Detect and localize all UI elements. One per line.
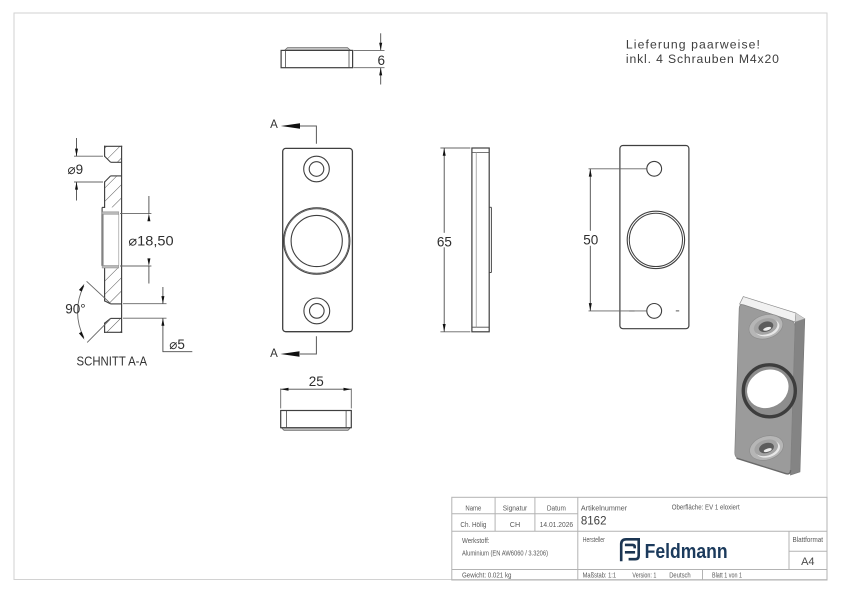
svg-text:14.01.2026: 14.01.2026	[540, 520, 574, 529]
svg-text:Version: 1: Version: 1	[632, 571, 656, 580]
svg-text:A4: A4	[801, 556, 814, 568]
svg-text:Artikelnummer: Artikelnummer	[581, 504, 628, 513]
svg-text:⌀9: ⌀9	[68, 162, 84, 177]
svg-text:A: A	[270, 348, 278, 360]
svg-text:Signatur: Signatur	[503, 504, 528, 513]
svg-text:50: 50	[583, 232, 598, 247]
svg-text:Blatt 1 von 1: Blatt 1 von 1	[712, 571, 742, 580]
svg-text:Ch. Hölig: Ch. Hölig	[460, 520, 486, 529]
svg-text:65: 65	[437, 234, 452, 249]
svg-text:Deutsch: Deutsch	[669, 571, 691, 580]
svg-text:⌀18,50: ⌀18,50	[128, 234, 173, 249]
svg-text:Gewicht: 0.021 kg: Gewicht: 0.021 kg	[462, 571, 512, 580]
svg-text:Aluminium (EN AW6060 / 3.3206): Aluminium (EN AW6060 / 3.3206)	[462, 549, 548, 558]
svg-text:Lieferung paarweise!: Lieferung paarweise!	[626, 37, 760, 51]
svg-text:Name: Name	[465, 504, 481, 513]
svg-text:25: 25	[309, 374, 324, 389]
svg-text:Blattformat: Blattformat	[793, 535, 824, 544]
svg-text:⌀5: ⌀5	[169, 337, 185, 352]
svg-text:inkl. 4 Schrauben M4x20: inkl. 4 Schrauben M4x20	[626, 52, 779, 66]
svg-text:90°: 90°	[65, 301, 85, 316]
svg-text:Oberfläche: EV 1 eloxiert: Oberfläche: EV 1 eloxiert	[672, 503, 740, 512]
svg-text:Werkstoff:: Werkstoff:	[462, 536, 490, 545]
svg-text:6: 6	[377, 53, 385, 68]
svg-text:Hersteller: Hersteller	[583, 535, 605, 544]
svg-text:Feldmann: Feldmann	[645, 540, 728, 563]
svg-text:SCHNITT A-A: SCHNITT A-A	[77, 355, 148, 369]
svg-text:A: A	[270, 119, 278, 131]
svg-text:CH: CH	[510, 520, 520, 529]
svg-text:Datum: Datum	[547, 504, 566, 513]
svg-text:Maßstab: 1:1: Maßstab: 1:1	[583, 571, 617, 580]
svg-text:8162: 8162	[581, 516, 607, 528]
